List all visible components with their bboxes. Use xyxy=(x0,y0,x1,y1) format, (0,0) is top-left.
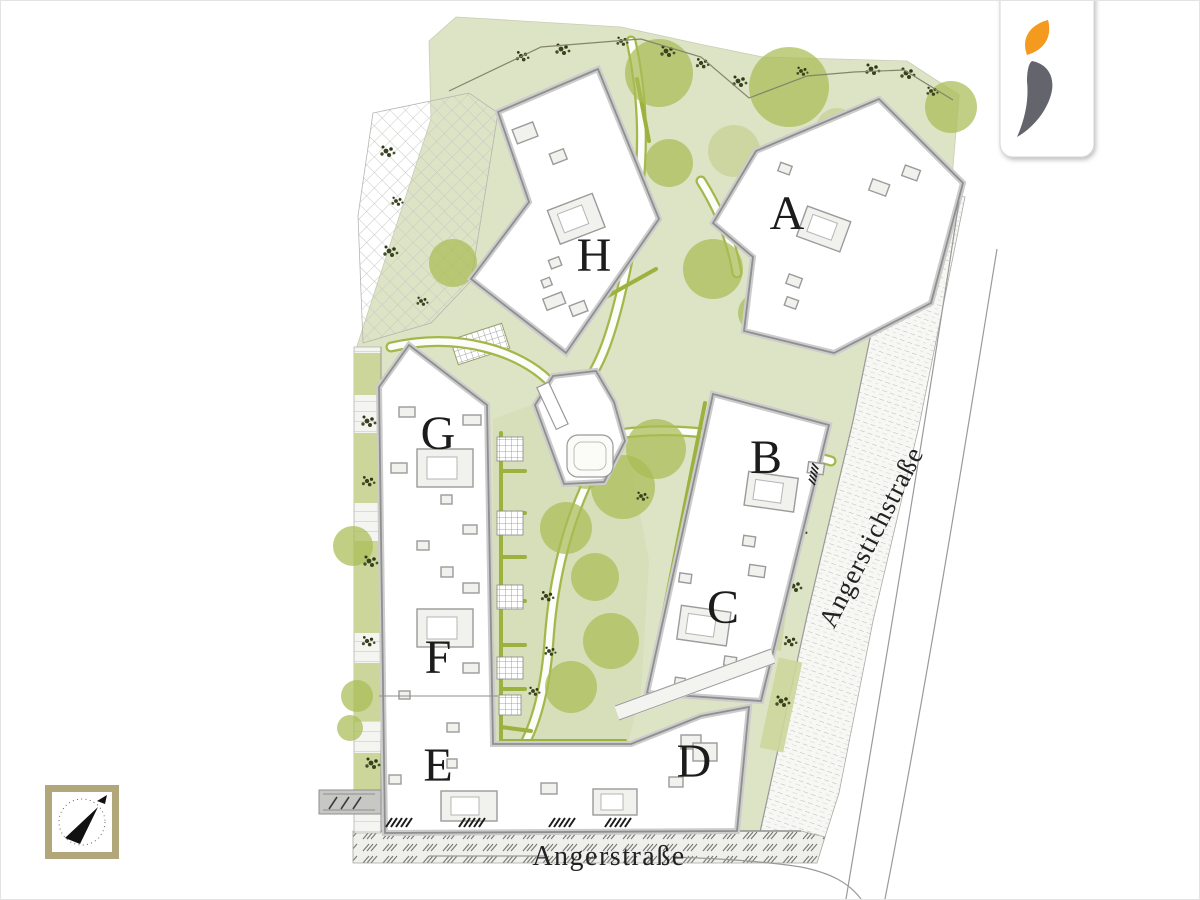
building-label-h: H xyxy=(577,229,612,282)
building-label-g: G xyxy=(421,407,456,460)
site-plan-page: A B C D E F G H Angerstraße Angerstichst… xyxy=(0,0,1200,900)
site-plan-drawing: A B C D E F G H Angerstraße Angerstichst… xyxy=(1,1,1200,900)
driveway-stub-west xyxy=(319,790,381,814)
building-label-b: B xyxy=(750,431,782,484)
building-label-d: D xyxy=(677,735,712,788)
compass-icon xyxy=(45,785,119,859)
building-label-f: F xyxy=(425,631,452,684)
building-label-c: C xyxy=(707,581,739,634)
building-label-e: E xyxy=(423,739,452,792)
street-label-angerstrasse: Angerstraße xyxy=(532,841,685,872)
building-label-a: A xyxy=(770,187,805,240)
